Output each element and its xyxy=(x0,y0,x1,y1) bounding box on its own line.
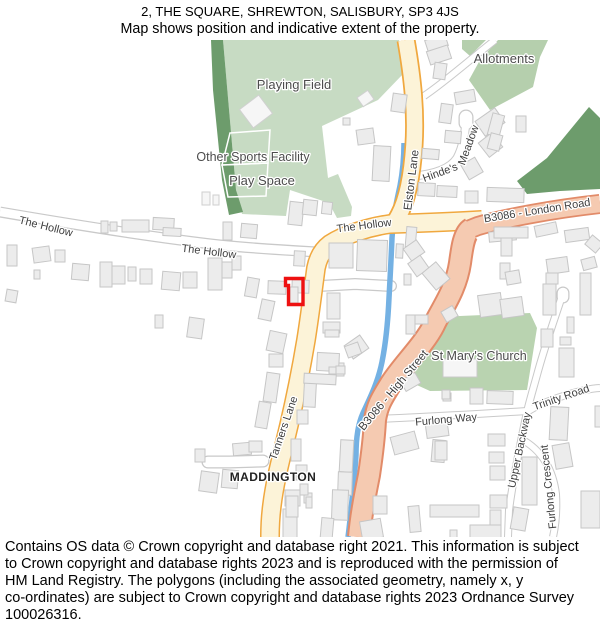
svg-text:Other Sports Facility: Other Sports Facility xyxy=(196,150,310,164)
svg-text:MADDINGTON: MADDINGTON xyxy=(230,470,316,484)
svg-text:Play Space: Play Space xyxy=(229,173,295,188)
svg-text:Playing Field: Playing Field xyxy=(257,77,331,92)
svg-text:Allotments: Allotments xyxy=(474,51,535,66)
svg-text:St Mary's Church: St Mary's Church xyxy=(431,349,527,363)
